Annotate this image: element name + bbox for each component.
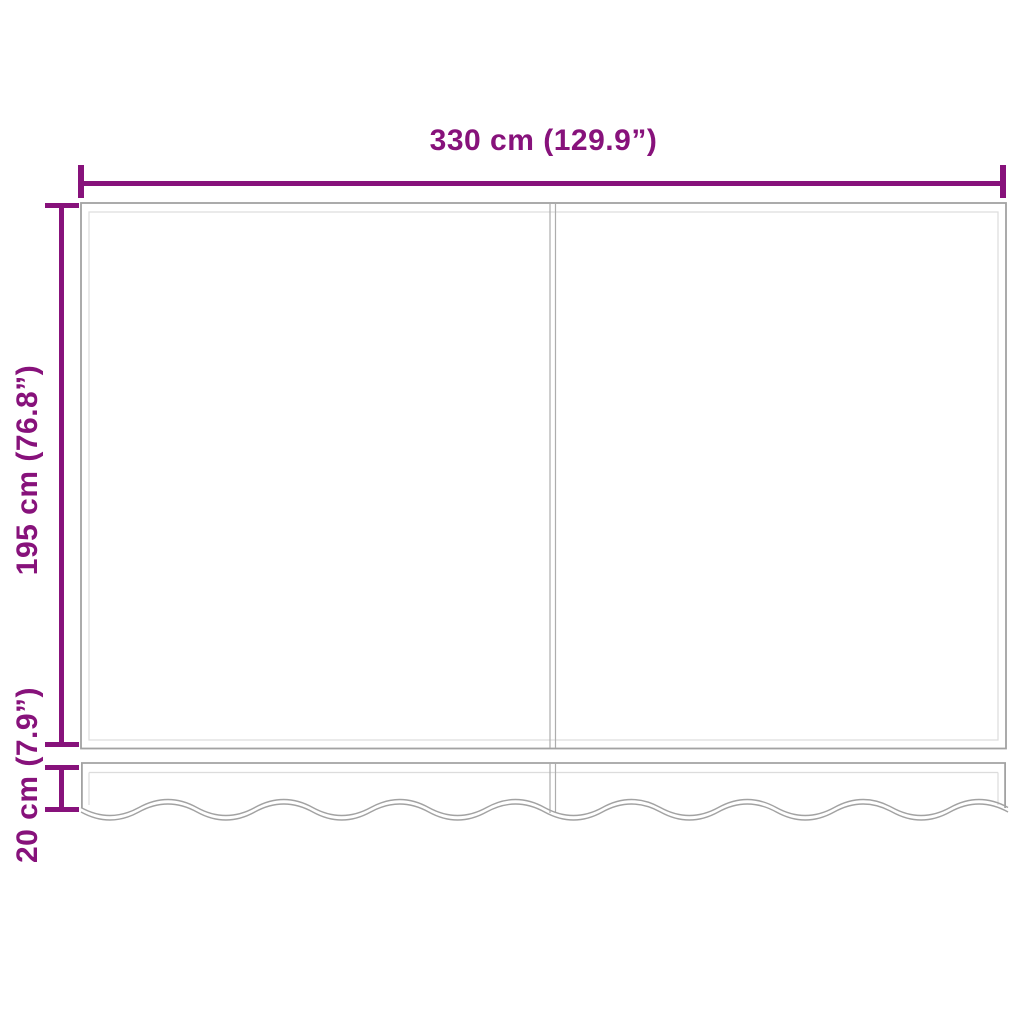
width-dimension-cap-left — [78, 165, 84, 198]
width-dimension-line — [81, 181, 1004, 186]
width-dimension-label: 330 cm (129.9”) — [81, 124, 1006, 158]
height-dimension-cap-top — [45, 203, 79, 208]
valance-center-seam — [550, 764, 556, 813]
fabric-panel — [81, 203, 1006, 749]
dimension-diagram: 330 cm (129.9”) 195 cm (76.8”) 20 cm (7.… — [0, 0, 1024, 1024]
valance-dimension-label: 20 cm (7.9”) — [11, 687, 45, 863]
height-dimension-line — [59, 204, 64, 745]
fabric-panel-center-seam — [550, 204, 556, 748]
valance-dimension-cap-bottom — [45, 807, 79, 812]
valance-dimension-line — [59, 768, 64, 810]
height-dimension-cap-bottom — [45, 742, 79, 747]
height-dimension-label: 195 cm (76.8”) — [11, 365, 45, 575]
width-dimension-cap-right — [1000, 165, 1006, 198]
valance-dimension-cap-top — [45, 765, 79, 770]
valance-wavy-edge — [81, 800, 1008, 821]
valance — [81, 763, 1008, 820]
